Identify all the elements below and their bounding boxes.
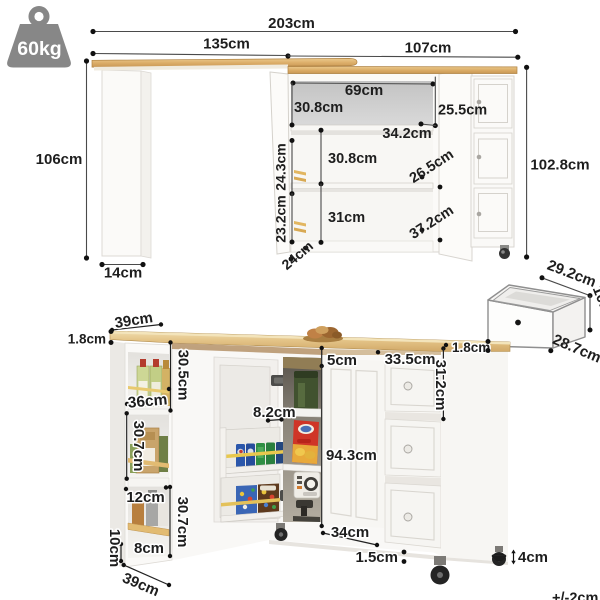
svg-text:33.5cm: 33.5cm xyxy=(385,351,436,368)
svg-text:+/-2cm: +/-2cm xyxy=(552,591,598,600)
svg-text:60kg: 60kg xyxy=(17,38,61,60)
svg-text:1.5cm: 1.5cm xyxy=(355,549,398,566)
svg-text:10cm: 10cm xyxy=(106,529,123,567)
svg-text:36cm: 36cm xyxy=(127,391,168,411)
svg-text:4cm: 4cm xyxy=(518,549,548,566)
svg-text:25.5cm: 25.5cm xyxy=(438,103,487,119)
svg-text:31.2cm: 31.2cm xyxy=(432,360,449,411)
svg-text:30.7cm: 30.7cm xyxy=(174,497,191,548)
svg-text:23.2cm: 23.2cm xyxy=(273,195,289,242)
svg-text:1.8cm: 1.8cm xyxy=(452,340,490,355)
svg-text:5cm: 5cm xyxy=(327,352,357,369)
svg-text:107cm: 107cm xyxy=(405,40,452,57)
svg-text:69cm: 69cm xyxy=(345,82,383,99)
svg-text:30.8cm: 30.8cm xyxy=(328,151,377,167)
svg-text:12cm: 12cm xyxy=(126,489,164,506)
svg-text:203cm: 203cm xyxy=(268,15,315,32)
svg-text:34.2cm: 34.2cm xyxy=(382,126,431,142)
svg-text:1.8cm: 1.8cm xyxy=(68,332,106,347)
svg-text:31cm: 31cm xyxy=(328,210,365,226)
svg-text:30.5cm: 30.5cm xyxy=(175,350,192,401)
svg-text:102.8cm: 102.8cm xyxy=(530,157,589,174)
svg-text:8cm: 8cm xyxy=(134,540,164,557)
svg-text:14cm: 14cm xyxy=(104,265,142,282)
svg-text:34cm: 34cm xyxy=(331,524,369,541)
svg-text:8.2cm: 8.2cm xyxy=(253,404,296,421)
svg-text:106cm: 106cm xyxy=(36,151,83,168)
svg-text:94.3cm: 94.3cm xyxy=(326,447,377,464)
svg-text:30.7cm: 30.7cm xyxy=(130,421,147,472)
svg-text:30.8cm: 30.8cm xyxy=(294,100,343,116)
svg-text:24.3cm: 24.3cm xyxy=(273,143,289,190)
svg-text:135cm: 135cm xyxy=(203,36,250,53)
